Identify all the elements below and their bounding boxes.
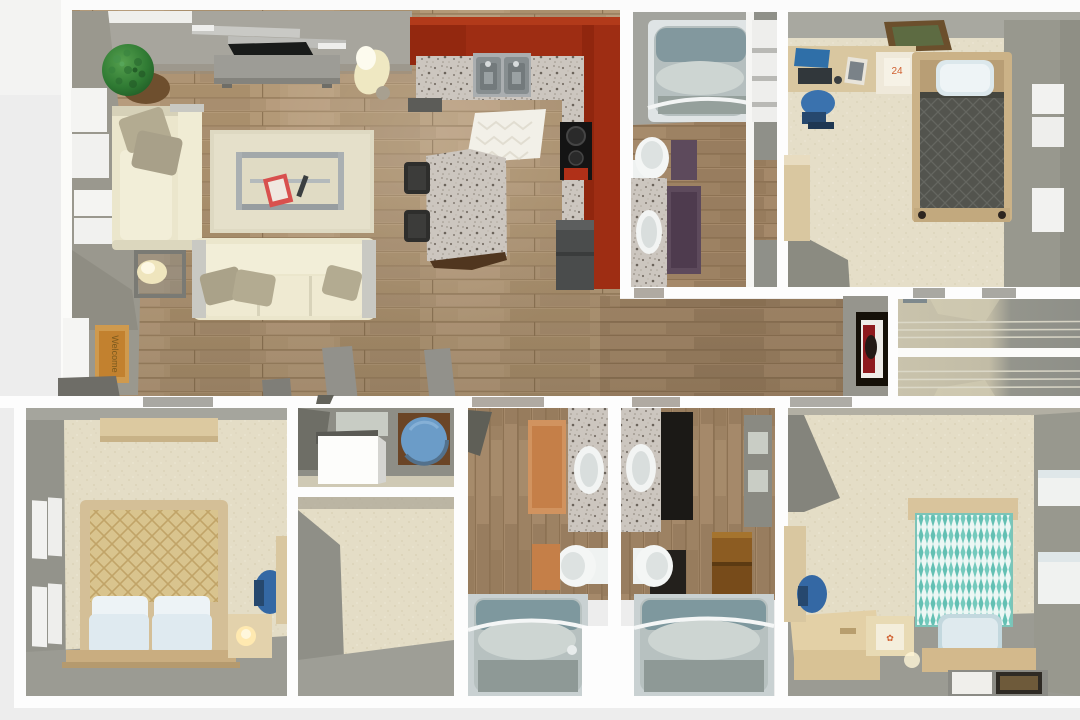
svg-text:24: 24	[891, 66, 903, 77]
svg-text:✿: ✿	[886, 633, 894, 643]
svg-text:Welcome: Welcome	[110, 335, 120, 372]
